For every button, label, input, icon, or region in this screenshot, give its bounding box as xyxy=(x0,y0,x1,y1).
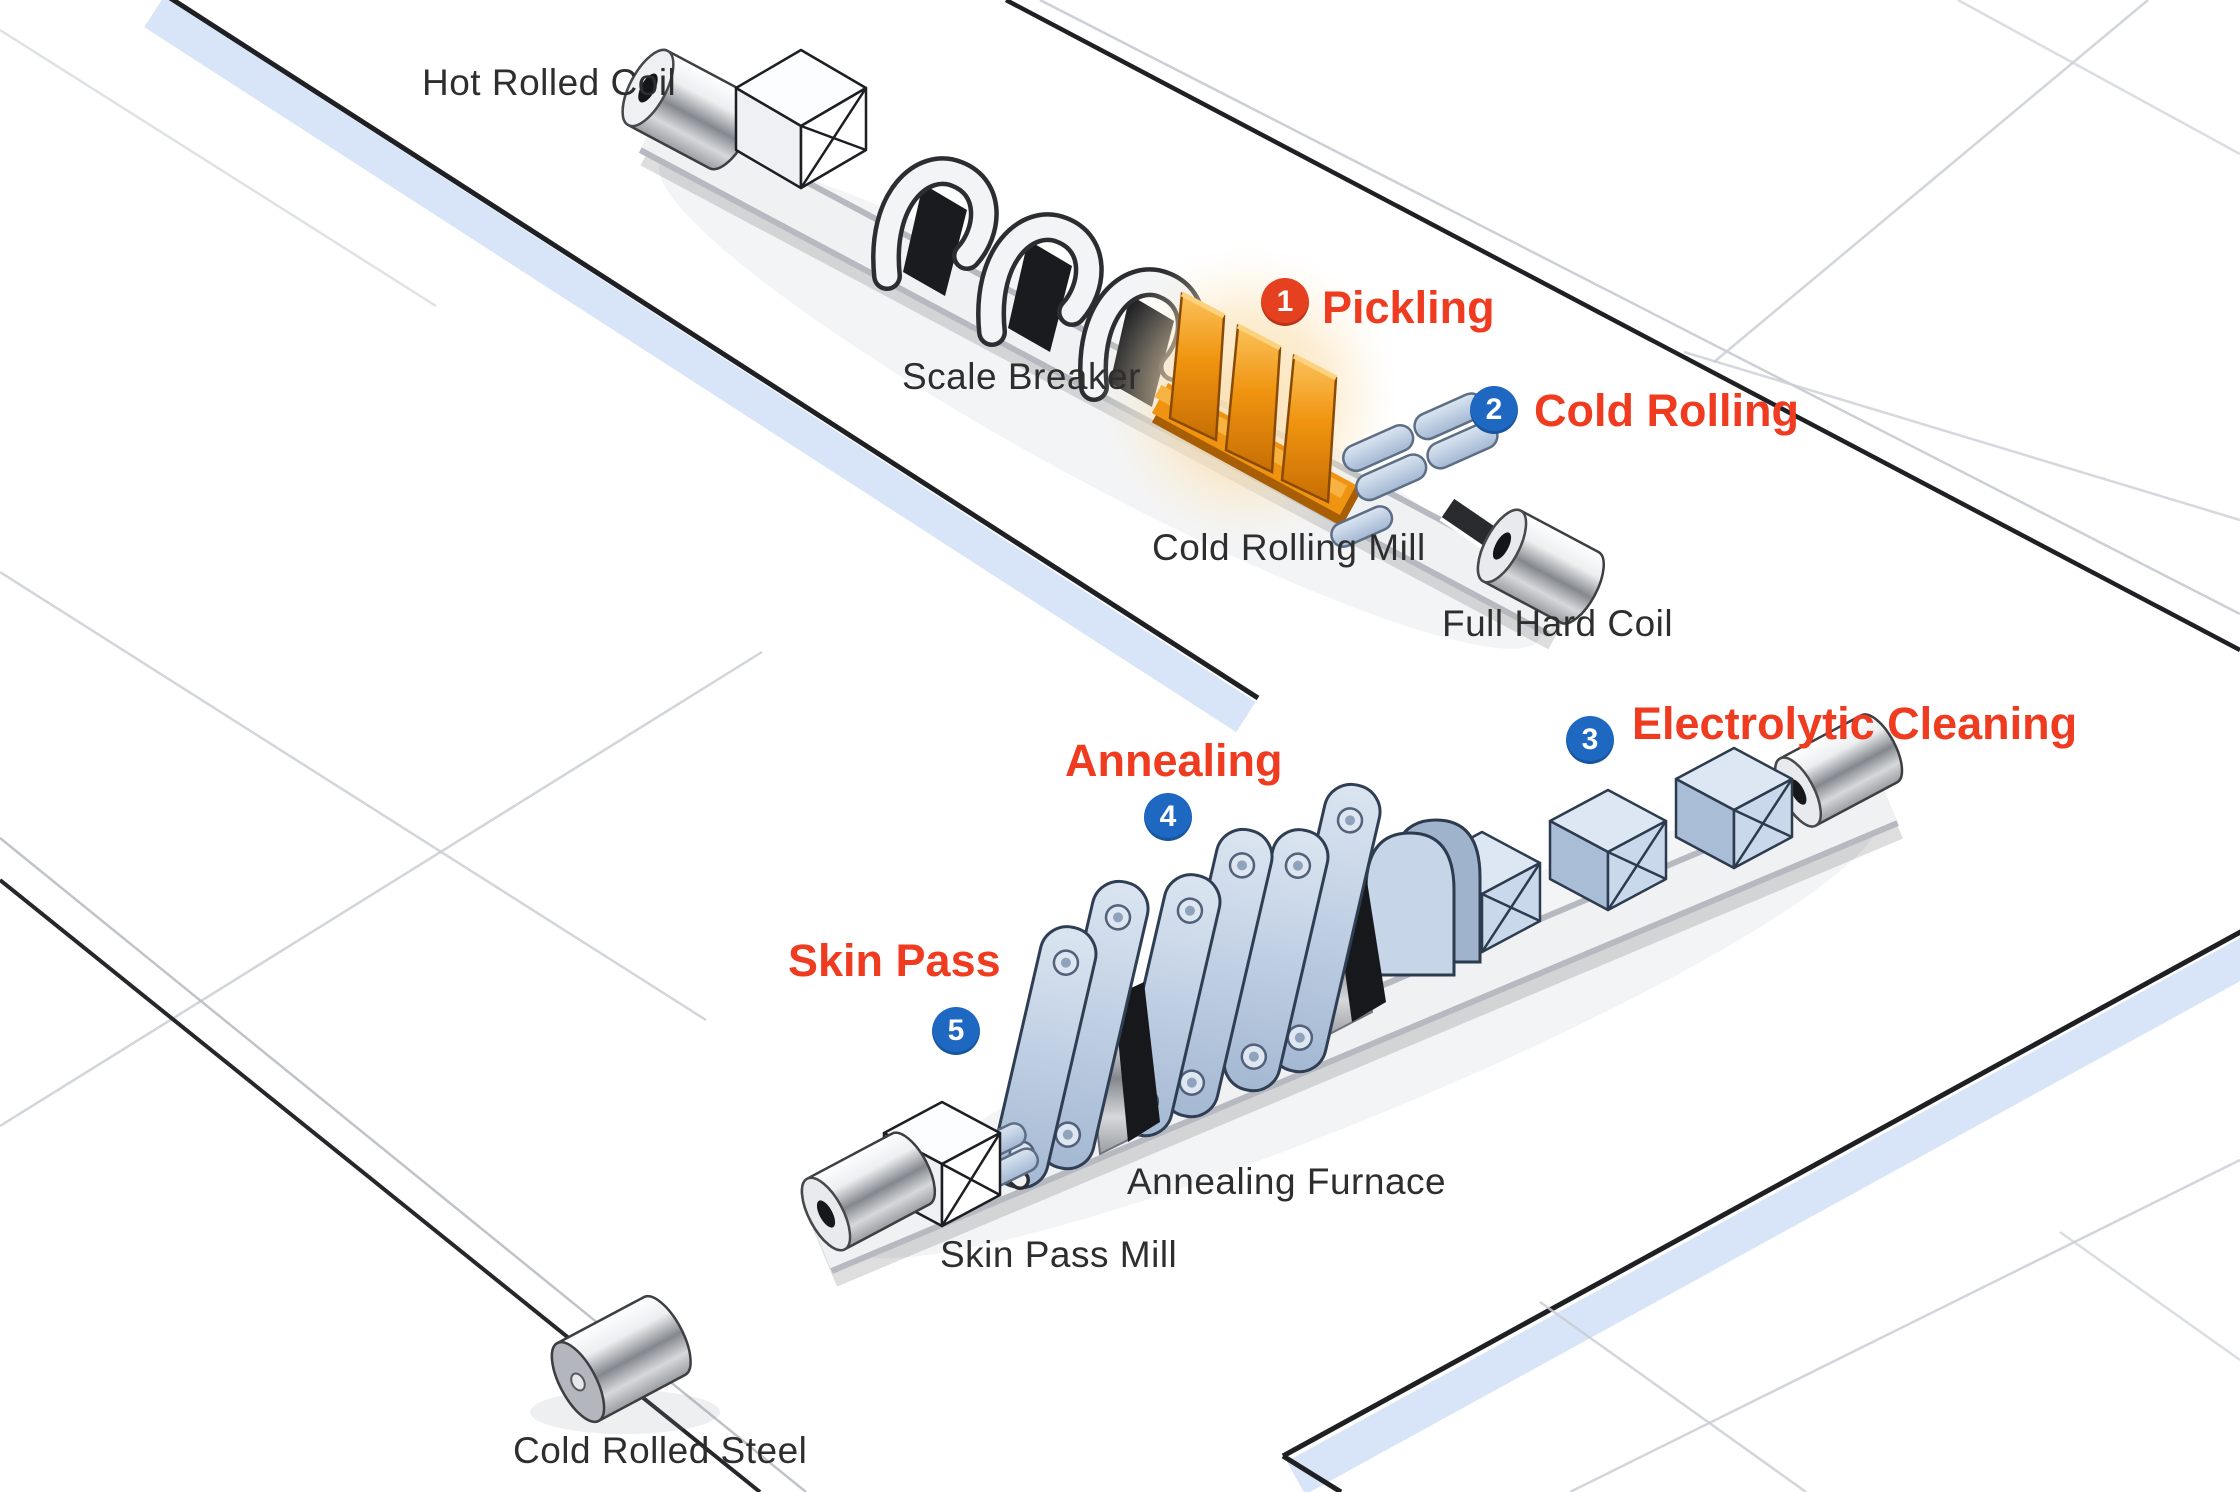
label-cold-rolling-mill: Cold Rolling Mill xyxy=(1152,527,1426,569)
step-number-3: 3 xyxy=(1582,723,1599,757)
step-badge-1: 1 xyxy=(1261,278,1309,326)
step-label-skin-pass: Skin Pass xyxy=(788,935,1001,987)
process-diagram: Hot Rolled Coil Scale Breaker Cold Rolli… xyxy=(0,0,2240,1492)
label-skin-pass-mill: Skin Pass Mill xyxy=(940,1234,1177,1276)
step-label-pickling: Pickling xyxy=(1322,282,1495,334)
step-number-4: 4 xyxy=(1160,800,1177,834)
step-label-cold-rolling: Cold Rolling xyxy=(1534,385,1799,437)
line1-pickling-cold-rolling xyxy=(612,42,1613,630)
step-number-2: 2 xyxy=(1486,393,1503,427)
step-badge-4: 4 xyxy=(1144,793,1192,841)
label-full-hard-coil: Full Hard Coil xyxy=(1442,603,1673,645)
label-scale-breaker: Scale Breaker xyxy=(902,356,1141,398)
step-label-annealing: Annealing xyxy=(1065,735,1283,787)
step-number-1: 1 xyxy=(1277,285,1294,319)
label-hot-rolled-coil: Hot Rolled Coil xyxy=(422,62,676,104)
step-badge-2: 2 xyxy=(1470,386,1518,434)
dome-cover-graphic xyxy=(1366,820,1480,975)
step-badge-3: 3 xyxy=(1566,716,1614,764)
label-annealing-furnace: Annealing Furnace xyxy=(1127,1161,1446,1203)
step-badge-5: 5 xyxy=(932,1007,980,1055)
step-label-electrolytic-cleaning: Electrolytic Cleaning xyxy=(1632,698,2077,750)
step-number-5: 5 xyxy=(948,1014,965,1048)
label-cold-rolled-steel: Cold Rolled Steel xyxy=(513,1430,807,1472)
